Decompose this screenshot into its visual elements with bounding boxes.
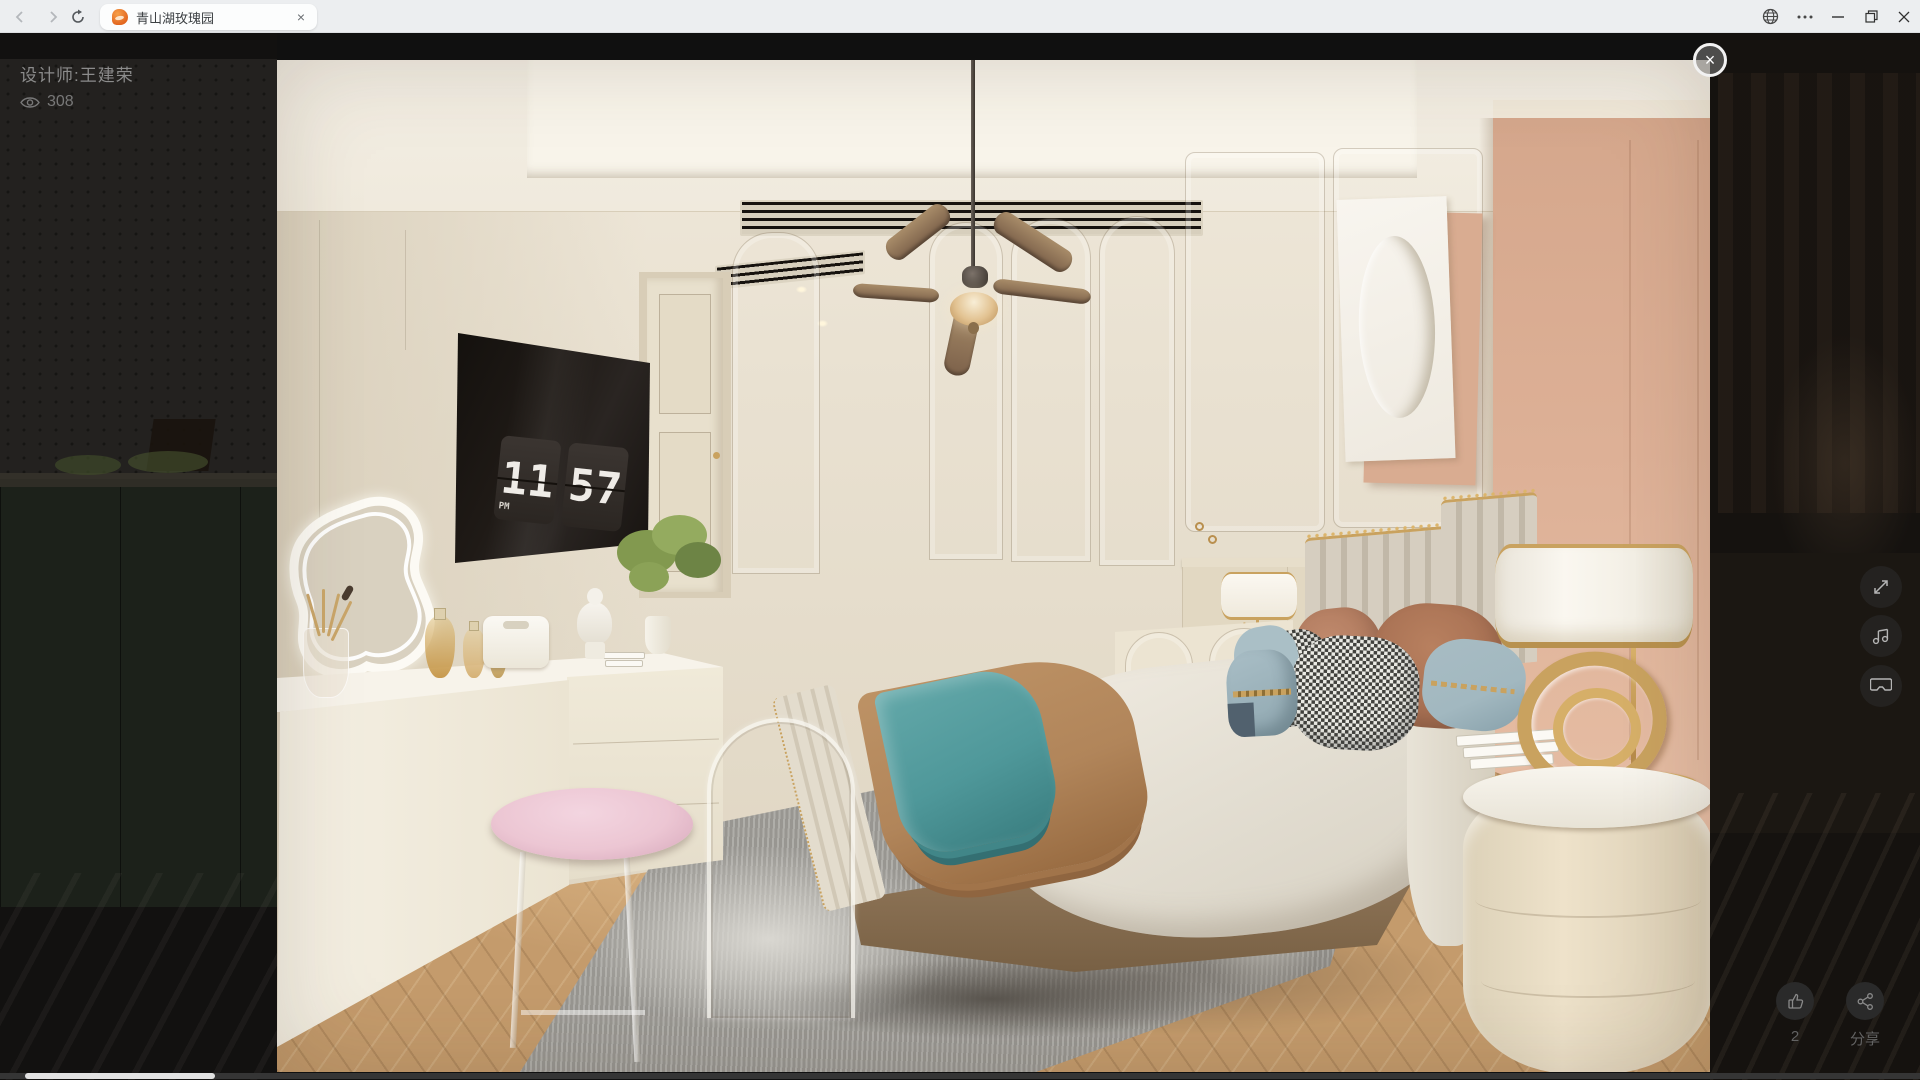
eye-icon bbox=[20, 96, 40, 109]
book bbox=[603, 652, 645, 659]
makeup-brush bbox=[322, 589, 325, 633]
plant-foliage bbox=[629, 562, 669, 592]
background-vegetable bbox=[55, 455, 121, 475]
music-button[interactable] bbox=[1860, 615, 1902, 657]
horizontal-scrollbar[interactable] bbox=[0, 1073, 1920, 1079]
wainscot-panel bbox=[1185, 152, 1325, 532]
vr-button[interactable] bbox=[1860, 665, 1902, 707]
flip-clock-minutes-card: 57 bbox=[561, 442, 629, 532]
chair-acrylic-back bbox=[707, 718, 855, 1018]
drawer-seam bbox=[573, 738, 719, 744]
view-count-row: 308 bbox=[20, 93, 74, 111]
lightbox-photo: 11 PM 57 bbox=[277, 60, 1710, 1072]
close-icon: × bbox=[1705, 51, 1716, 69]
browser-tab[interactable]: 青山湖玫瑰园 × bbox=[100, 4, 317, 30]
chair-cushion bbox=[491, 788, 693, 860]
background-terrazzo-wall bbox=[0, 59, 277, 479]
back-icon bbox=[13, 10, 27, 24]
minimize-button[interactable] bbox=[1824, 4, 1852, 29]
pillow-blue-gold-band bbox=[1225, 648, 1299, 738]
restore-button[interactable] bbox=[1857, 4, 1885, 29]
close-window-icon bbox=[1898, 11, 1910, 23]
background-page-left bbox=[0, 33, 277, 1080]
small-lamp-shade bbox=[1221, 572, 1297, 620]
browser-titlebar: 青山湖玫瑰园 × bbox=[0, 0, 1920, 33]
wardrobe-panel bbox=[1011, 218, 1091, 562]
back-button[interactable] bbox=[8, 5, 32, 29]
book bbox=[605, 660, 643, 667]
accent-wall-groove bbox=[1697, 140, 1699, 760]
desk-books bbox=[603, 652, 645, 668]
tab-title: 青山湖玫瑰园 bbox=[136, 8, 214, 27]
page-viewport: 设计师:王建荣 308 bbox=[0, 33, 1920, 1080]
like-button[interactable] bbox=[1776, 982, 1814, 1020]
tissue-slot bbox=[503, 621, 529, 629]
chair-crossbar bbox=[521, 1010, 645, 1015]
tab-favicon-icon bbox=[112, 9, 128, 25]
nightstand-drawer-seam bbox=[1475, 882, 1701, 918]
more-menu-icon bbox=[1797, 15, 1813, 19]
background-vegetable bbox=[128, 451, 208, 473]
like-action[interactable]: 2 bbox=[1760, 982, 1830, 1045]
restore-icon bbox=[1865, 10, 1878, 23]
nightstand-drawer-seam bbox=[1481, 964, 1695, 998]
background-reflection bbox=[0, 873, 277, 1080]
tissue-box bbox=[483, 616, 549, 668]
background-page-right bbox=[1710, 33, 1920, 1080]
nightstand-top bbox=[1463, 766, 1710, 828]
bust-pedestal bbox=[585, 642, 605, 659]
flip-clock-hours: 11 bbox=[498, 452, 556, 508]
perfume-cap bbox=[434, 608, 446, 620]
large-lamp-inner-ring bbox=[1553, 688, 1641, 770]
refresh-icon bbox=[70, 9, 86, 25]
wardrobe-panel bbox=[1099, 216, 1175, 566]
large-lamp-shade bbox=[1495, 544, 1693, 648]
pillow-gold-band bbox=[1431, 681, 1515, 695]
wall-panel bbox=[732, 232, 820, 574]
fan-light bbox=[950, 292, 998, 326]
forward-button[interactable] bbox=[41, 5, 65, 29]
pillow-houndstooth bbox=[1288, 633, 1422, 754]
share-label: 分享 bbox=[1850, 1028, 1880, 1049]
fan-finial bbox=[968, 322, 979, 334]
close-window-button[interactable] bbox=[1890, 4, 1918, 29]
door-knob bbox=[713, 452, 720, 459]
forward-icon bbox=[46, 10, 60, 24]
wall-art-canvas bbox=[1336, 196, 1455, 462]
makeup-brush-cup bbox=[303, 628, 349, 698]
flip-clock: 11 PM 57 bbox=[493, 435, 637, 537]
tab-close-button[interactable]: × bbox=[293, 9, 309, 25]
share-button[interactable] bbox=[1846, 982, 1884, 1020]
perfume-cap bbox=[469, 621, 479, 631]
thumbs-up-icon bbox=[1786, 992, 1805, 1011]
plant-foliage bbox=[675, 542, 721, 578]
bust-sculpture bbox=[577, 602, 612, 644]
designer-label: 设计师:王建荣 bbox=[20, 61, 134, 86]
music-icon bbox=[1871, 626, 1891, 646]
globe-icon bbox=[1762, 8, 1779, 25]
flip-clock-minutes: 57 bbox=[566, 459, 624, 515]
wall-molding bbox=[405, 230, 406, 350]
vr-icon bbox=[1870, 678, 1892, 694]
share-action[interactable]: 分享 bbox=[1830, 982, 1900, 1049]
door-panel bbox=[659, 294, 711, 414]
scrollbar-thumb[interactable] bbox=[25, 1073, 215, 1079]
fullscreen-button[interactable] bbox=[1860, 566, 1902, 608]
flip-clock-hours-card: 11 PM bbox=[493, 435, 561, 525]
background-countertop bbox=[0, 473, 277, 487]
wall-art-crescent bbox=[1356, 235, 1438, 420]
wardrobe-knob bbox=[1208, 535, 1217, 544]
bust-sculpture-head bbox=[587, 588, 603, 605]
view-count: 308 bbox=[47, 93, 74, 111]
perfume-bottle bbox=[463, 628, 485, 678]
plant-vase bbox=[645, 616, 671, 654]
share-icon bbox=[1856, 992, 1875, 1011]
globe-button[interactable] bbox=[1756, 4, 1784, 29]
background-cabinets bbox=[0, 487, 277, 907]
perfume-bottle bbox=[425, 616, 455, 678]
lightbox-close-button[interactable]: × bbox=[1693, 43, 1727, 77]
flip-clock-meridiem: PM bbox=[498, 501, 510, 512]
wardrobe-knob bbox=[1195, 522, 1204, 531]
accent-wall-crown bbox=[1493, 100, 1710, 118]
like-count: 2 bbox=[1791, 1028, 1799, 1045]
refresh-button[interactable] bbox=[66, 5, 90, 29]
fullscreen-icon bbox=[1871, 577, 1891, 597]
fan-rod bbox=[971, 60, 975, 274]
minimize-icon bbox=[1832, 11, 1844, 23]
pillow-gold-band bbox=[1233, 688, 1291, 697]
more-menu-button[interactable] bbox=[1791, 4, 1819, 29]
fan-motor bbox=[962, 266, 988, 288]
